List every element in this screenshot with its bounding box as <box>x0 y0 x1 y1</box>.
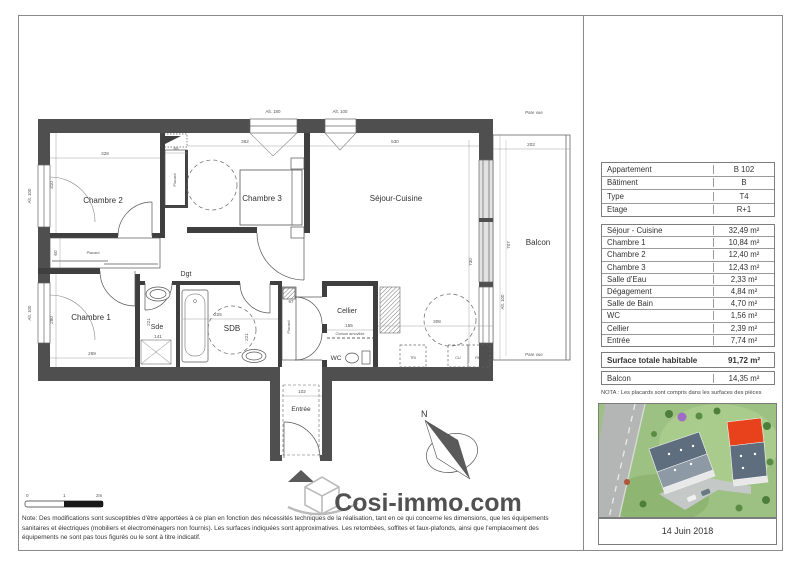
annotation-cu: CU <box>455 356 461 360</box>
table-row: Bâtiment B <box>602 176 774 190</box>
room-label-chambre-3: Chambre 3 <box>242 194 282 203</box>
watermark-logo: Cosi-immo.com <box>288 477 522 517</box>
table-row: WC 1,56 m² <box>602 309 774 321</box>
floor-plan: Chambre 2 Chambre 3 Séjour-Cuisine Balco… <box>0 0 583 565</box>
table-row: Salle de Bain 4,70 m² <box>602 297 774 309</box>
table-row: Chambre 2 12,40 m² <box>602 248 774 260</box>
area-label: Salle d'Eau <box>602 275 713 284</box>
info-value: B <box>713 178 774 187</box>
balcon-label: Balcon <box>602 374 713 383</box>
dim-155: 155 <box>345 323 353 328</box>
dim-707: 707 <box>506 241 511 249</box>
annotation-ref: REF <box>475 356 483 360</box>
date-box: 14 Juin 2018 <box>598 517 777 545</box>
table-row: Appartement B 102 <box>602 163 774 176</box>
dim-221-sde: 221 <box>146 318 151 326</box>
dim-141: 141 <box>154 334 162 339</box>
floor-plan-sheet: Chambre 2 Chambre 3 Séjour-Cuisine Balco… <box>0 0 800 565</box>
dim-310: 310 <box>49 181 54 189</box>
info-label: Etage <box>602 205 713 214</box>
table-row: Chambre 1 10,84 m² <box>602 236 774 248</box>
room-label-sde: Sde <box>151 324 164 331</box>
info-label: Type <box>602 192 713 201</box>
table-row: Salle d'Eau 2,33 m² <box>602 273 774 285</box>
total-surface-row: Surface totale habitable 91,72 m² <box>601 352 775 368</box>
dim-203: 203 <box>527 142 535 147</box>
total-label: Surface totale habitable <box>602 356 714 365</box>
room-label-cellier: Cellier <box>337 308 358 315</box>
table-row: Entrée 7,74 m² <box>602 334 774 346</box>
area-value: 10,84 m² <box>713 238 774 247</box>
site-plan-building-highlighted <box>727 418 768 486</box>
room-areas-table: Séjour - Cuisine 32,49 m² Chambre 1 10,8… <box>601 224 775 347</box>
area-value: 32,49 m² <box>713 226 774 235</box>
balcon-row: Balcon 14,35 m² <box>601 371 775 385</box>
area-value: 4,70 m² <box>713 299 774 308</box>
site-plan-image <box>598 403 777 519</box>
room-label-chambre-2: Chambre 2 <box>83 196 123 205</box>
area-label: Chambre 2 <box>602 250 713 259</box>
table-row: Séjour - Cuisine 32,49 m² <box>602 225 774 236</box>
area-value: 12,43 m² <box>713 263 774 272</box>
annotation-alt100-left2: Alt. 100 <box>27 305 32 320</box>
area-value: 4,84 m² <box>713 287 774 296</box>
info-value: B 102 <box>713 165 774 174</box>
dim-221-sdb: 221 <box>244 333 249 341</box>
dim-67: 67 <box>288 299 294 304</box>
total-value: 91,72 m² <box>714 356 774 365</box>
dim-60: 60 <box>53 250 58 256</box>
area-value: 1,56 m² <box>713 311 774 320</box>
table-row: Etage R+1 <box>602 203 774 217</box>
dim-269: 269 <box>88 351 96 356</box>
scale-2m: 2m <box>96 493 103 498</box>
apartment-info-table: Appartement B 102 Bâtiment B Type T4 Eta… <box>601 162 775 217</box>
footer-note: Note: Des modifications sont susceptible… <box>22 514 574 543</box>
annotation-tri: TRI <box>410 356 416 360</box>
dim-328: 328 <box>101 151 109 156</box>
area-value: 2,33 m² <box>713 275 774 284</box>
dim-362: 362 <box>241 139 249 144</box>
scale-bar: 0 1 2m <box>25 493 103 507</box>
plan-date: 14 Juin 2018 <box>662 526 714 536</box>
panel-divider-line <box>583 15 584 550</box>
entrance-arrow <box>288 470 314 482</box>
dim-730: 730 <box>468 258 473 266</box>
room-label-sdb: SDB <box>224 324 240 333</box>
area-label: Chambre 1 <box>602 238 713 247</box>
room-label-placard-v2: Placard <box>287 321 291 334</box>
area-label: Séjour - Cuisine <box>602 226 713 235</box>
room-label-placard-v1: Placard <box>173 174 177 187</box>
area-label: Cellier <box>602 324 713 333</box>
annotation-alt180: Alt. 180 <box>266 109 281 114</box>
balcon-value: 14,35 m² <box>713 374 774 383</box>
room-label-sejour-cuisine: Séjour-Cuisine <box>370 194 423 203</box>
highlighted-roof <box>727 418 764 446</box>
area-value: 2,39 m² <box>713 324 774 333</box>
scale-1: 1 <box>63 493 66 498</box>
info-value: T4 <box>713 192 774 201</box>
table-row: Chambre 3 12,43 m² <box>602 261 774 273</box>
room-label-chambre-1: Chambre 1 <box>71 313 111 322</box>
dim-280: 280 <box>49 316 54 324</box>
info-label: Appartement <box>602 165 713 174</box>
area-value: 12,40 m² <box>713 250 774 259</box>
area-label: WC <box>602 311 713 320</box>
info-value: R+1 <box>713 205 774 214</box>
annotation-cloison-amovible: Cloison amovible <box>336 332 365 336</box>
table-row: Cellier 2,39 m² <box>602 322 774 334</box>
annotation-pare-vue-top: Pare vue <box>525 110 543 115</box>
north-label: N <box>421 409 428 419</box>
area-label: Chambre 3 <box>602 263 713 272</box>
annotation-alt100-top: Alt. 100 <box>333 109 348 114</box>
room-label-placard-h: Placard <box>87 251 100 255</box>
room-label-entree: Entrée <box>291 406 311 413</box>
dim-65: 65 <box>173 146 179 151</box>
area-value: 7,74 m² <box>713 336 774 345</box>
table-row: Type T4 <box>602 189 774 203</box>
dim-530: 530 <box>391 139 399 144</box>
watermark-text: Cosi-immo.com <box>334 489 522 517</box>
area-label: Entrée <box>602 336 713 345</box>
area-label: Salle de Bain <box>602 299 713 308</box>
site-plan-drawing <box>599 404 776 518</box>
info-label: Bâtiment <box>602 178 713 187</box>
dim-102: 102 <box>298 389 306 394</box>
annotation-pare-vue-bottom: Pare vue <box>525 352 543 357</box>
scale-0: 0 <box>26 493 29 498</box>
north-compass-icon: N <box>421 409 482 479</box>
room-label-balcon: Balcon <box>526 238 550 247</box>
dim-225: 225 <box>214 312 222 317</box>
area-label: Dégagement <box>602 287 713 296</box>
annotation-alt100-left1: Alt. 100 <box>27 188 32 203</box>
nota-text: NOTA : Les placards sont compris dans le… <box>601 390 777 396</box>
room-label-dgt: Dgt <box>181 271 192 278</box>
dim-308: 308 <box>433 319 441 324</box>
room-label-wc: WC <box>331 355 342 362</box>
balcony <box>493 135 570 360</box>
table-row: Dégagement 4,84 m² <box>602 285 774 297</box>
annotation-alt100-right: Alt. 100 <box>500 294 505 309</box>
